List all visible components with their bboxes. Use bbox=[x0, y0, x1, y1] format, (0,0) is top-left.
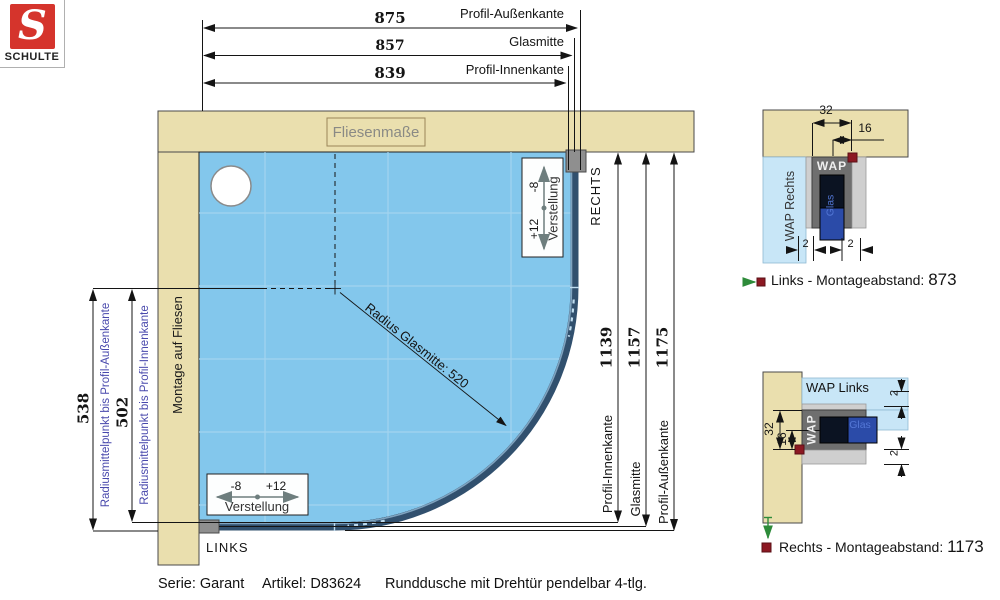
detail-top-dim-2-right: 2 bbox=[844, 238, 857, 250]
label-profil-aussenkante-right: Profil-Außenkante bbox=[657, 415, 671, 529]
adjust-label-right: Verstellung bbox=[546, 169, 561, 249]
detail-bottom-area-label: WAP Links bbox=[806, 381, 869, 395]
detail-top-caption-label: Links - Montageabstand: bbox=[771, 272, 924, 288]
dim-502: 502 bbox=[116, 388, 131, 438]
detail-bottom-dim-32: 32 bbox=[762, 417, 776, 441]
detail-section-bottom bbox=[762, 372, 909, 552]
label-profil-innenkante-right: Profil-Innenkante bbox=[601, 409, 615, 519]
dim-857: 857 bbox=[355, 39, 425, 54]
detail-bottom-caption-value: 1173 bbox=[947, 537, 984, 556]
wall-mount-label: Montage auf Fliesen bbox=[171, 290, 185, 420]
adjust-minus-bottom: -8 bbox=[224, 479, 248, 493]
adjust-plus-right: +12 bbox=[527, 217, 541, 241]
tile-box-label: Fliesenmaße bbox=[327, 124, 425, 141]
dim-1175: 1175 bbox=[656, 318, 671, 378]
detail-bottom-dim-2-top: 2 bbox=[889, 387, 901, 400]
brand-logo: S SCHULTE bbox=[0, 0, 65, 68]
label-radius-aussenkante: Radiusmittelpunkt bis Profil-Außenkante bbox=[100, 285, 112, 525]
dim-1139: 1139 bbox=[600, 318, 615, 378]
brand-letter: S bbox=[10, 5, 55, 47]
detail-bottom-caption-label: Rechts - Montageabstand: bbox=[779, 539, 943, 555]
wap-left-plan bbox=[199, 520, 219, 533]
drawing-page: S SCHULTE 875 857 839 Profil-Außenkante … bbox=[0, 0, 1000, 600]
detail-bottom-dim-16: 16 bbox=[775, 427, 789, 451]
label-glasmitte-right: Glasmitte bbox=[629, 454, 643, 524]
detail-top-wap-label: WAP bbox=[812, 160, 852, 173]
label-radius-innenkante: Radiusmittelpunkt bis Profil-Innenkante bbox=[139, 285, 151, 525]
detail-top-dim-2-left: 2 bbox=[799, 238, 812, 250]
footer-description: Runddusche mit Drehtür pendelbar 4-tlg. bbox=[385, 576, 647, 592]
detail-bottom-caption: Rechts - Montageabstand: 1173 bbox=[779, 539, 984, 555]
label-glasmitte-top: Glasmitte bbox=[416, 35, 564, 49]
detail-top-glass-label: Glas bbox=[826, 192, 837, 220]
detail-bottom-dim-2-bottom: 2 bbox=[889, 447, 901, 460]
dim-875: 875 bbox=[355, 11, 425, 26]
footer-article: Artikel: D83624 bbox=[262, 576, 361, 592]
detail-top-dim-16: 16 bbox=[852, 121, 878, 135]
wall-top bbox=[158, 111, 694, 152]
detail-top-area-label: WAP Rechts bbox=[783, 162, 797, 250]
detail-bottom-wap-label: WAP bbox=[806, 410, 819, 450]
label-profil-aussenkante-top: Profil-Außenkante bbox=[416, 7, 564, 21]
side-label-rechts: RECHTS bbox=[589, 161, 603, 231]
footer-series: Serie: Garant bbox=[158, 576, 244, 592]
detail-top-dim-32: 32 bbox=[814, 103, 838, 117]
detail-bottom-glass-label: Glas bbox=[845, 420, 875, 431]
label-profil-innenkante-top: Profil-Innenkante bbox=[416, 63, 564, 77]
drain-circle bbox=[211, 166, 251, 206]
dim-1157: 1157 bbox=[628, 318, 643, 378]
adjust-plus-bottom: +12 bbox=[261, 479, 291, 493]
dim-839: 839 bbox=[355, 66, 425, 81]
side-label-links: LINKS bbox=[206, 541, 249, 555]
brand-name: SCHULTE bbox=[4, 51, 60, 63]
shower-tray bbox=[199, 152, 572, 523]
brand-logo-icon: S bbox=[10, 4, 55, 49]
dim-538: 538 bbox=[77, 384, 92, 434]
detail-top-caption: Links - Montageabstand: 873 bbox=[771, 272, 957, 288]
adjust-label-bottom: Verstellung bbox=[217, 499, 297, 514]
adjust-minus-right: -8 bbox=[527, 175, 541, 199]
detail-top-caption-value: 873 bbox=[928, 270, 956, 289]
